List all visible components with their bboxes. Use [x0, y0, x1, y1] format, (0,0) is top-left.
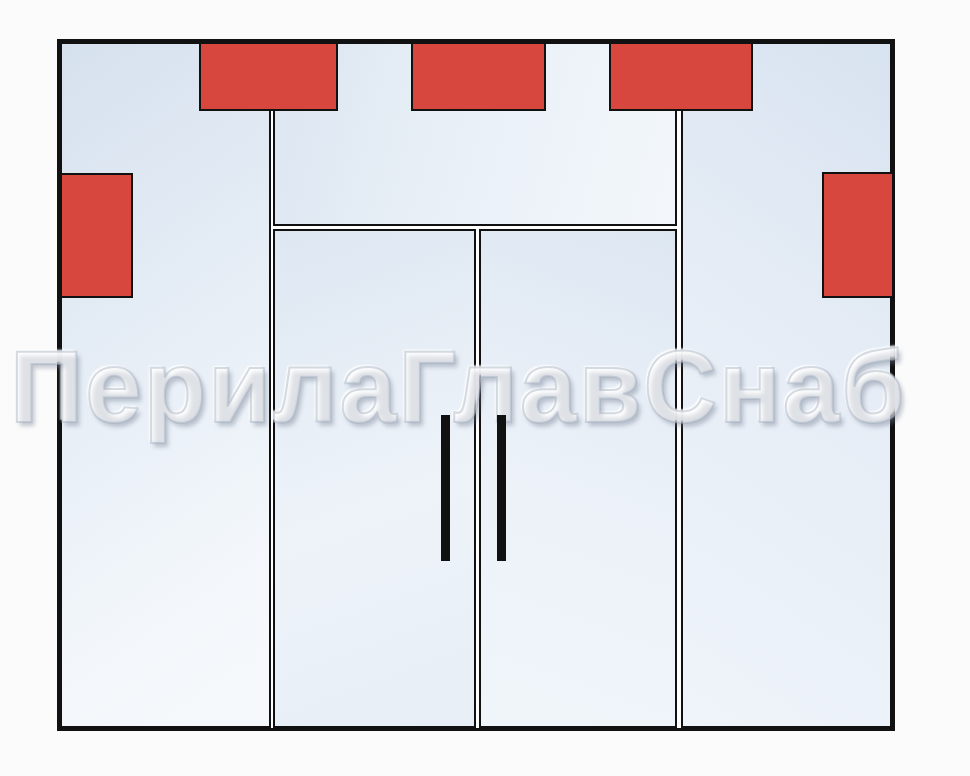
- fitting-top-center-rectangle: [411, 42, 546, 111]
- right-door-handle: [497, 415, 506, 561]
- fitting-side-left-rectangle: [61, 173, 133, 298]
- fitting-side-right-rectangle: [822, 172, 893, 298]
- left-door-handle: [441, 415, 450, 561]
- fitting-top-right-rectangle: [609, 42, 753, 111]
- left-sidelight-glass-panel: [60, 42, 271, 728]
- drawing-canvas: ПерилаГлавСнаб: [0, 0, 970, 776]
- right-sidelight-glass-panel: [681, 42, 892, 728]
- fitting-top-left-rectangle: [199, 42, 338, 111]
- right-door-leaf: [479, 229, 677, 728]
